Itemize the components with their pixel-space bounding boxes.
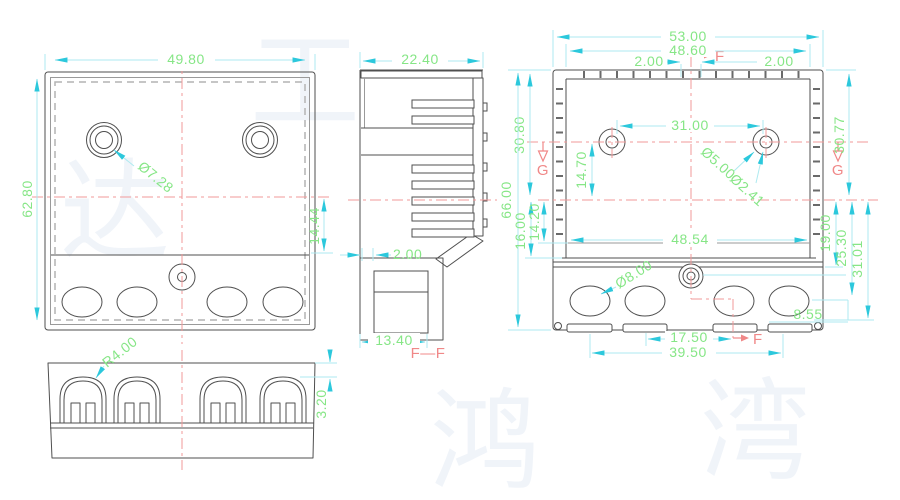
watermark-char: 鸿 <box>430 381 541 500</box>
watermark-char: 湾 <box>700 371 811 494</box>
dim-front-lower-offset: 14.44 <box>306 207 322 245</box>
dim-back-pilot-dia: Ø2.41 <box>727 170 768 209</box>
dim-back-tab-left: 2.00 <box>634 53 663 69</box>
dim-section-foot-width: 13.40 <box>375 332 413 348</box>
dim-back-recess-depth: 14.20 <box>526 203 542 241</box>
dim-back-inner-width: 48.60 <box>669 42 707 58</box>
f-bottom-arrow-icon <box>741 335 749 342</box>
back-dimensions: 53.00 48.60 2.00 2.00 31.00 30.80 30.77 … <box>498 28 874 360</box>
view-back: F F G G 53.00 48.60 2.00 2.00 <box>498 28 878 360</box>
view-bottom: R4.00 3.20 <box>48 333 337 470</box>
marker-g-left: G <box>537 162 549 179</box>
dim-back-slot-pitch: 17.50 <box>670 329 708 345</box>
dim-section-width: 22.40 <box>401 51 439 67</box>
dim-back-depth-left: 30.80 <box>511 116 527 154</box>
dim-back-drop-c: 31.01 <box>849 240 865 278</box>
dim-back-slot-span: 39.50 <box>669 344 707 360</box>
section-label-ff: F—F <box>411 345 446 362</box>
dim-front-width: 49.80 <box>167 51 205 67</box>
g-left-arrow-icon <box>539 151 548 161</box>
dim-section-wall: 2.00 <box>393 246 422 262</box>
marker-f-bottom: F <box>753 331 763 348</box>
dim-back-slot-edge: 8.55 <box>793 306 822 322</box>
dim-back-cavity-width: 48.54 <box>671 231 709 247</box>
marker-g-right: G <box>832 162 844 179</box>
cad-drawing-canvas: 达 鸿 湾 工 <box>0 0 900 500</box>
dim-back-hole-spacing: 31.00 <box>671 117 709 133</box>
dim-front-height: 62.80 <box>19 180 35 218</box>
dim-back-drop-a: 19.00 <box>817 214 833 252</box>
dim-bottom-step-height: 3.20 <box>313 389 329 418</box>
dim-bottom-corner-radius: R4.00 <box>99 333 140 370</box>
section-outline <box>360 70 487 340</box>
cad-drawing: 达 鸿 湾 工 <box>0 0 900 500</box>
dim-back-depth-right: 30.77 <box>831 116 847 154</box>
dim-back-tab-right: 2.00 <box>764 53 793 69</box>
dim-back-hole-drop: 14.70 <box>573 151 589 189</box>
view-section-ff: 22.40 2.00 13.40 F—F <box>340 51 497 362</box>
bottom-dimensions: R4.00 3.20 <box>96 333 337 418</box>
back-outline <box>553 70 823 332</box>
dim-back-drop-b: 25.30 <box>833 229 849 267</box>
